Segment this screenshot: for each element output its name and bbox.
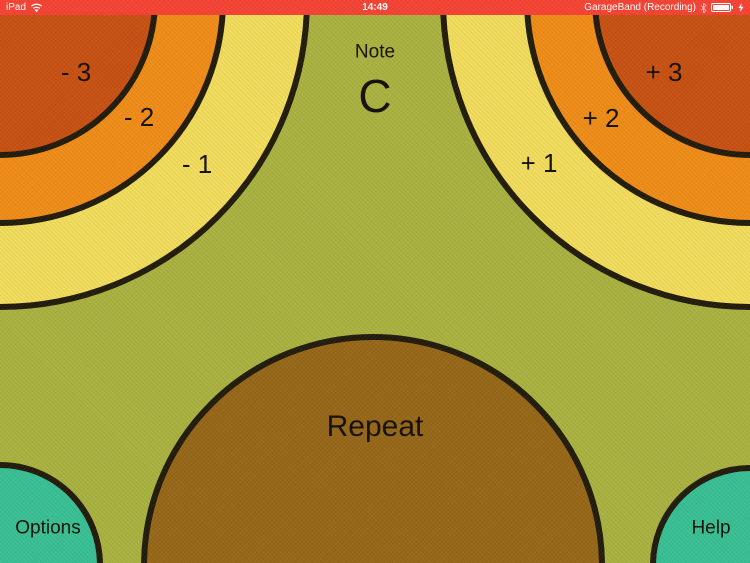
help-button[interactable] bbox=[650, 465, 750, 563]
battery-icon bbox=[711, 3, 734, 12]
status-bar: iPad 14:49 GarageBand (Recording) bbox=[0, 0, 750, 15]
repeat-button[interactable] bbox=[141, 334, 605, 563]
options-button[interactable] bbox=[0, 462, 103, 563]
wifi-icon bbox=[30, 3, 43, 13]
charging-bolt-icon bbox=[738, 3, 744, 12]
clock: 14:49 bbox=[362, 0, 388, 15]
bluetooth-icon bbox=[700, 3, 707, 13]
app-status: GarageBand (Recording) bbox=[584, 2, 696, 13]
device-name: iPad bbox=[6, 2, 26, 13]
music-pad-screen: - 3 - 2 - 1 + 3 + 2 + 1 Note C Repeat Op… bbox=[0, 0, 750, 563]
note-caption: Note bbox=[355, 43, 395, 62]
current-note: C bbox=[358, 73, 391, 119]
